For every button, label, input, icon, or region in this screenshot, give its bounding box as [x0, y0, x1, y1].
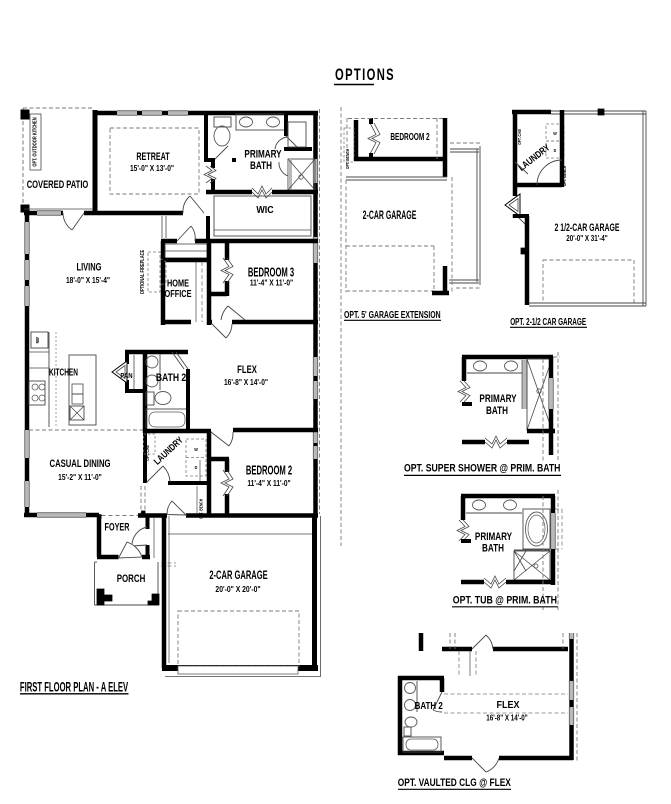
- svg-text:OPT. BENCH: OPT. BENCH: [563, 166, 567, 187]
- svg-text:REF: REF: [36, 336, 40, 343]
- svg-text:FLEX: FLEX: [237, 364, 257, 377]
- svg-text:KITCHEN: KITCHEN: [49, 366, 78, 378]
- svg-text:CASUAL DINING: CASUAL DINING: [50, 458, 111, 471]
- svg-text:RETREAT: RETREAT: [136, 151, 169, 163]
- svg-text:BEDROOM 2: BEDROOM 2: [390, 130, 429, 142]
- svg-text:OPT. 5' GARAGE EXTENSION: OPT. 5' GARAGE EXTENSION: [344, 309, 441, 321]
- svg-text:FIRST FLOOR PLAN - A ELEV: FIRST FLOOR PLAN - A ELEV: [20, 680, 129, 695]
- svg-text:BATH: BATH: [482, 542, 504, 555]
- svg-text:BATH 2: BATH 2: [415, 700, 443, 711]
- svg-text:OPT. BENCH: OPT. BENCH: [346, 149, 350, 170]
- svg-text:20'-0" X 20'-0": 20'-0" X 20'-0": [215, 584, 260, 594]
- svg-text:18'-0" X 15'-4": 18'-0" X 15'-4": [66, 275, 110, 285]
- svg-text:FLEX: FLEX: [497, 700, 521, 712]
- svg-text:LIVING: LIVING: [77, 260, 102, 273]
- svg-text:PAN: PAN: [120, 372, 132, 380]
- svg-text:BATH: BATH: [250, 160, 272, 173]
- svg-text:16'-8" X 14'-0": 16'-8" X 14'-0": [486, 714, 527, 723]
- svg-text:11'-4" X 11'-0": 11'-4" X 11'-0": [250, 278, 294, 288]
- svg-text:OPT. OUTDOOR KITCHEN: OPT. OUTDOOR KITCHEN: [32, 117, 38, 166]
- svg-text:PRIMARY: PRIMARY: [479, 393, 517, 406]
- svg-text:2-CAR GARAGE: 2-CAR GARAGE: [209, 569, 268, 582]
- svg-text:OPT. 2-1/2 CAR GARAGE: OPT. 2-1/2 CAR GARAGE: [510, 315, 586, 327]
- svg-text:BATH 2: BATH 2: [156, 372, 187, 384]
- svg-text:2-CAR GARAGE: 2-CAR GARAGE: [363, 209, 417, 222]
- svg-text:W: W: [194, 447, 198, 452]
- svg-text:WIC: WIC: [256, 204, 273, 216]
- svg-text:OFFICE: OFFICE: [165, 288, 192, 300]
- svg-text:11'-4" X 11'-0": 11'-4" X 11'-0": [247, 478, 291, 488]
- svg-text:OPT. SUPER SHOWER @ PRIM. BATH: OPT. SUPER SHOWER @ PRIM. BATH: [404, 463, 560, 475]
- svg-text:D: D: [195, 465, 198, 470]
- svg-text:PORCH: PORCH: [117, 573, 146, 586]
- svg-text:15'-0" X 13'-0": 15'-0" X 13'-0": [130, 163, 174, 173]
- svg-text:W: W: [553, 131, 557, 136]
- svg-text:15'-2" X 11'-0": 15'-2" X 11'-0": [58, 472, 102, 482]
- svg-text:BEDROOM 2: BEDROOM 2: [246, 464, 292, 479]
- svg-text:OPT. CAB: OPT. CAB: [146, 445, 150, 461]
- svg-text:OPT. VAULTED CLG @ FLEX: OPT. VAULTED CLG @ FLEX: [398, 777, 511, 789]
- svg-text:FOYER: FOYER: [105, 521, 130, 533]
- svg-text:OPTIONS: OPTIONS: [335, 65, 395, 84]
- svg-text:COVERED PATIO: COVERED PATIO: [27, 179, 89, 192]
- svg-text:16'-8" X 14'-0": 16'-8" X 14'-0": [224, 377, 268, 387]
- svg-text:OPT. CAB: OPT. CAB: [518, 129, 522, 145]
- svg-text:2 1/2-CAR GARAGE: 2 1/2-CAR GARAGE: [554, 221, 619, 233]
- svg-text:OPT. TUB @ PRIM. BATH: OPT. TUB @ PRIM. BATH: [453, 595, 557, 607]
- svg-text:OPTIONAL FIREPLACE: OPTIONAL FIREPLACE: [140, 250, 146, 294]
- svg-text:BATH: BATH: [486, 405, 508, 418]
- svg-text:20'-0" X 31'-4": 20'-0" X 31'-4": [566, 234, 607, 243]
- svg-text:D: D: [554, 148, 557, 153]
